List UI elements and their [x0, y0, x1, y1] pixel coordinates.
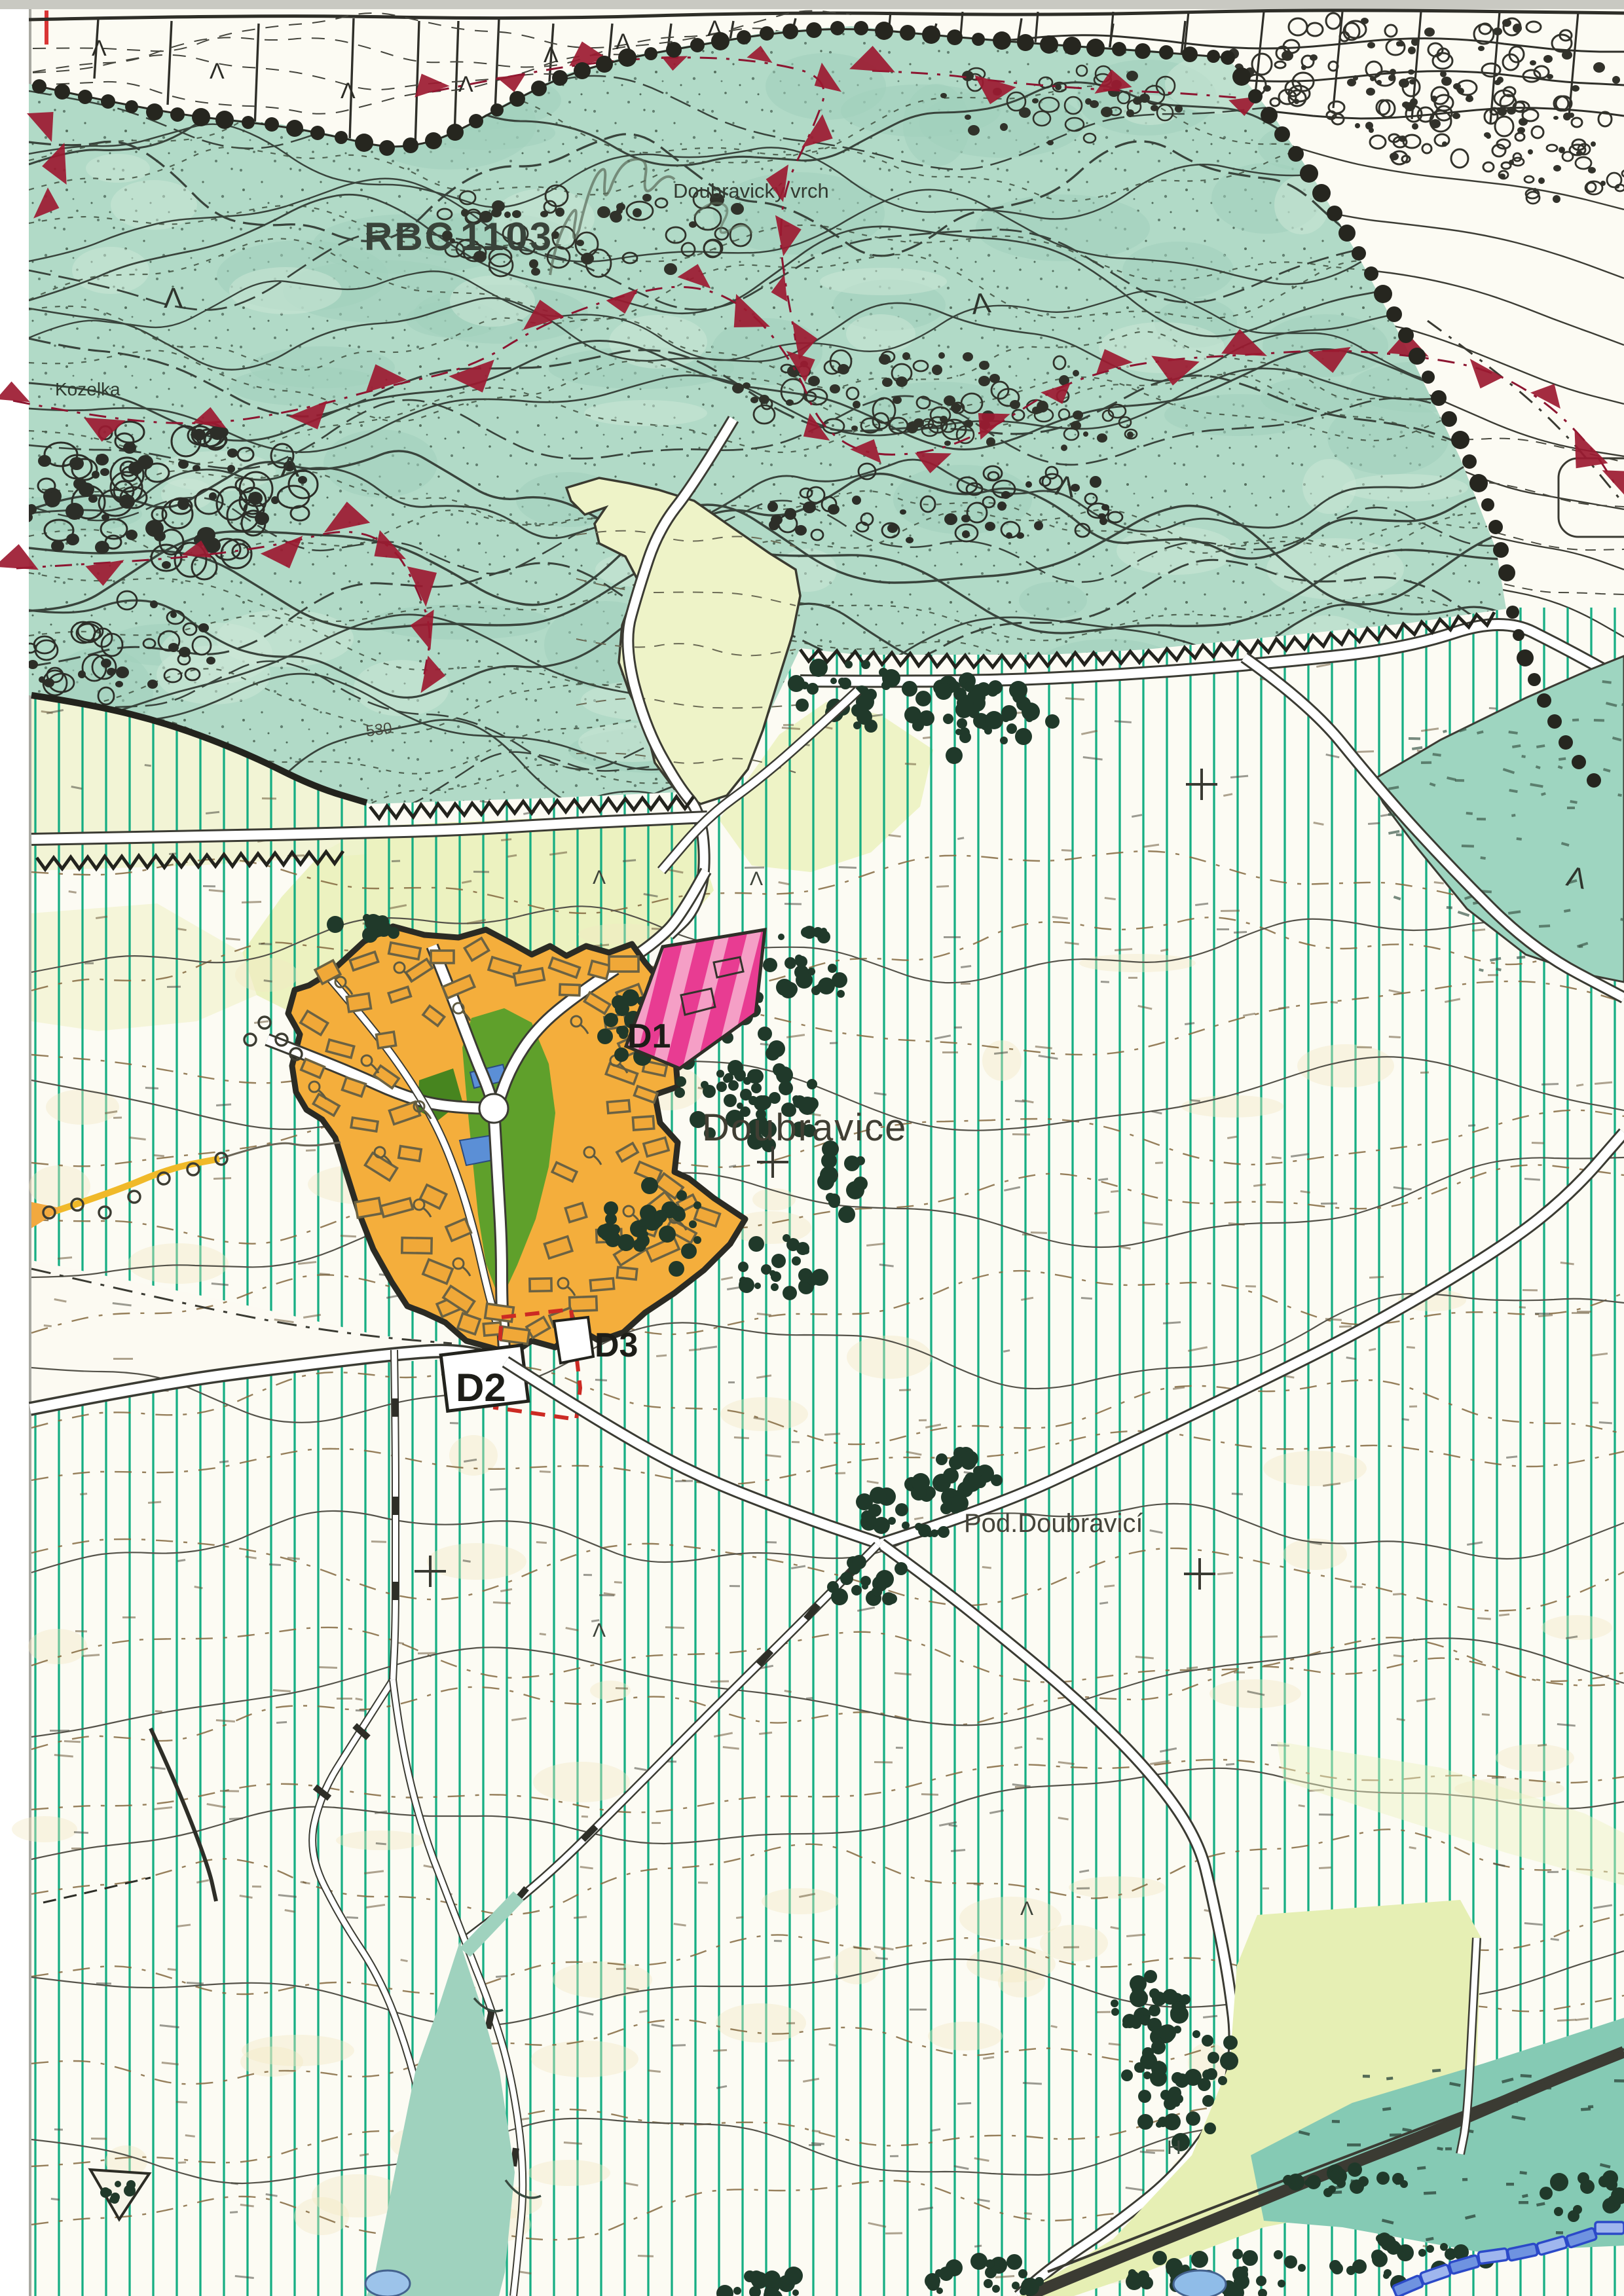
svg-text:Λ: Λ	[1020, 1898, 1033, 1920]
svg-text:H: H	[1167, 2137, 1181, 2159]
svg-text:D1: D1	[627, 1017, 671, 1055]
svg-text:Doubravický vrch: Doubravický vrch	[673, 179, 829, 202]
svg-text:Λ: Λ	[210, 59, 225, 84]
svg-text:Λ: Λ	[280, 451, 300, 483]
svg-text:Λ: Λ	[593, 867, 606, 888]
svg-text:Doubravice: Doubravice	[702, 1106, 907, 1149]
svg-text:Λ: Λ	[164, 282, 183, 314]
svg-text:Kozelka: Kozelka	[55, 379, 120, 399]
svg-text:Pod.Doubravicí: Pod.Doubravicí	[964, 1509, 1143, 1538]
svg-text:D2: D2	[456, 1366, 506, 1410]
svg-text:RBC 1103: RBC 1103	[364, 215, 553, 259]
svg-text:530: 530	[365, 720, 393, 740]
svg-text:Λ: Λ	[92, 36, 107, 61]
svg-text:Λ: Λ	[750, 868, 763, 890]
svg-text:D3: D3	[595, 1326, 638, 1364]
svg-text:Λ: Λ	[341, 79, 356, 103]
svg-text:Λ: Λ	[593, 1620, 606, 1641]
svg-text:Λ: Λ	[970, 287, 993, 321]
svg-text:Λ: Λ	[544, 43, 559, 67]
